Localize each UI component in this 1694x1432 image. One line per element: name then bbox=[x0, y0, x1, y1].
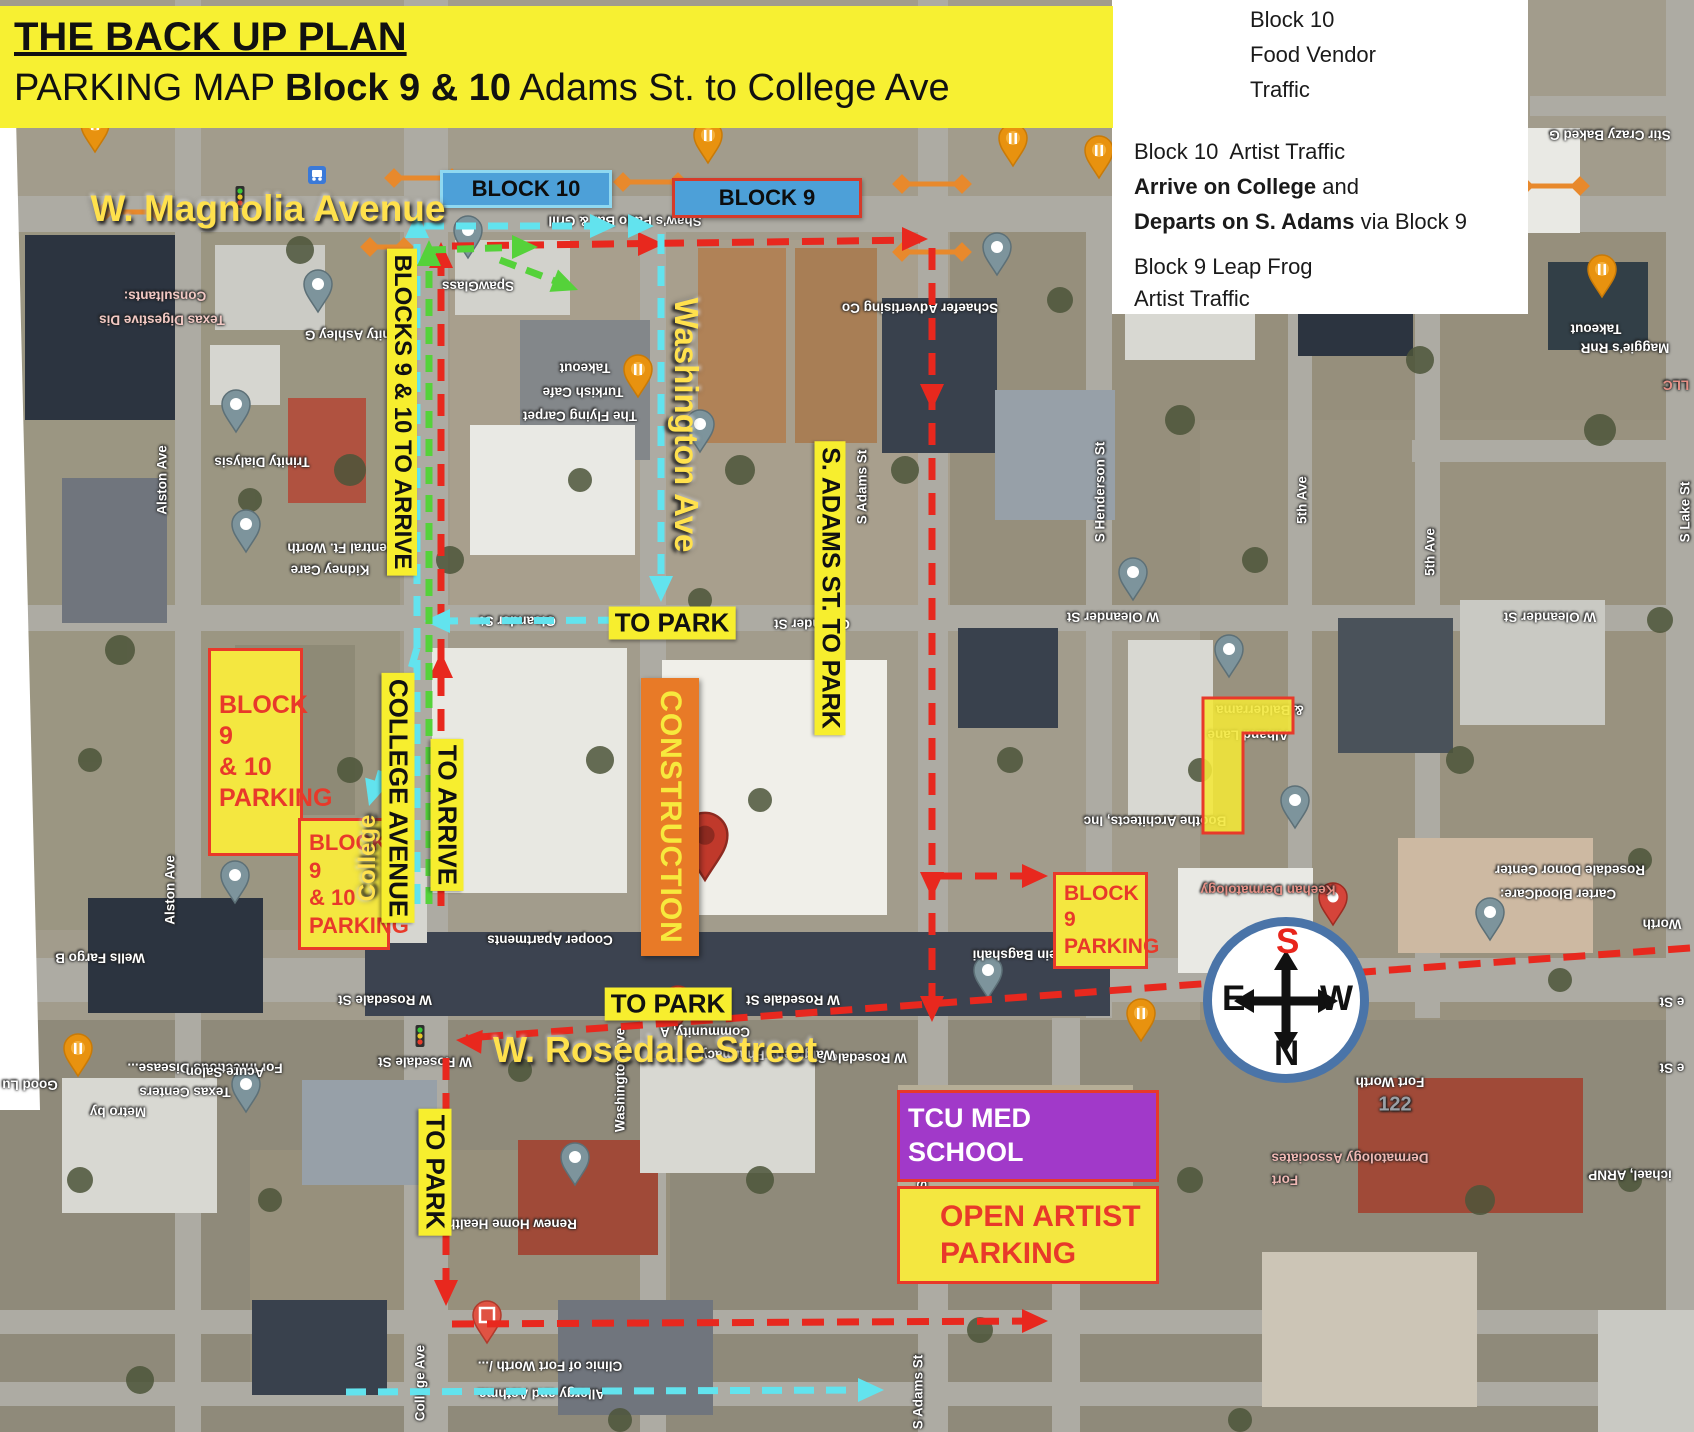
map-label: Texas Centers bbox=[139, 1085, 230, 1100]
legend-item1-line2: Food Vendor bbox=[1250, 43, 1376, 67]
map-label: 122 bbox=[1378, 1094, 1411, 1117]
map-label: Kidney Care bbox=[291, 563, 370, 578]
college-script-label: College bbox=[354, 815, 382, 902]
legend-item1-line1: Block 10 bbox=[1250, 8, 1334, 32]
map-label: S Adams St bbox=[911, 1355, 926, 1430]
legend-item2-line3: Departs on S. Adams via Block 9 bbox=[1134, 210, 1467, 234]
to-park-oleander-label: TO PARK bbox=[609, 607, 736, 640]
map-label: Texas Digestive Dis bbox=[99, 313, 225, 328]
college-avenue-label: COLLEGE AVENUE bbox=[382, 673, 415, 923]
map-label: S Adams St bbox=[855, 450, 870, 525]
compass-rose: S E W N bbox=[1203, 917, 1369, 1083]
map-label: ichael, ARNP bbox=[1588, 1168, 1672, 1183]
block-9-10-parking-large: BLOCK 9& 10PARKING bbox=[208, 648, 303, 856]
map-label: Takeout bbox=[560, 361, 611, 376]
map-label: Oleander St bbox=[480, 614, 556, 629]
map-label: W Rosedale St bbox=[338, 993, 432, 1008]
legend-arrive-bold: Arrive on College bbox=[1134, 174, 1316, 199]
tcu-med-school-line: TCU MED SCHOOL bbox=[908, 1102, 1148, 1170]
to-arrive-label: TO ARRIVE bbox=[431, 739, 464, 891]
map-label: Alston Ave bbox=[163, 855, 178, 925]
map-label: The Flying Carpet bbox=[523, 409, 637, 424]
legend-item3-line1: Block 9 Leap Frog bbox=[1134, 255, 1313, 279]
block-9-tag: BLOCK 9 bbox=[672, 178, 862, 218]
block-10-tag: BLOCK 10 bbox=[440, 170, 612, 208]
block-9-parking-line: PARKING bbox=[1064, 934, 1137, 960]
map-label: College Ave bbox=[413, 1345, 428, 1421]
legend-item2-line2: Arrive on College and bbox=[1134, 175, 1359, 199]
map-label: & Balderrama bbox=[1216, 703, 1304, 718]
to-park-college-label: TO PARK bbox=[419, 1109, 452, 1236]
block-9-10-parking-small-line: PARKING bbox=[309, 912, 379, 940]
map-label: Alston Ave bbox=[155, 445, 170, 515]
page-subtitle: PARKING MAP Block 9 & 10 Adams St. to Co… bbox=[14, 62, 1113, 114]
legend-departs-rest: via Block 9 bbox=[1354, 209, 1467, 234]
map-label: Stir Crazy Baked G bbox=[1549, 128, 1671, 143]
map-label: Central Ft. Worth bbox=[287, 541, 396, 556]
legend-departs-bold: Departs on S. Adams bbox=[1134, 209, 1354, 234]
map-label: W Rosedale St bbox=[746, 993, 840, 1008]
open-artist-parking-line: OPEN ARTIST bbox=[940, 1198, 1141, 1236]
to-park-rosedale-label: TO PARK bbox=[605, 988, 732, 1021]
map-label: 5th Ave bbox=[1423, 528, 1438, 576]
map-label: 5th Ave bbox=[1295, 476, 1310, 524]
map-label: Good Lu bbox=[2, 1078, 57, 1093]
block-9-10-parking-large-line: BLOCK 9 bbox=[219, 690, 292, 753]
map-label: Cooper Apartments bbox=[487, 933, 613, 948]
compass-north: N bbox=[1274, 1034, 1299, 1074]
block-9-parking-line: BLOCK 9 bbox=[1064, 881, 1137, 934]
map-label: Consultants: bbox=[124, 289, 207, 304]
subtitle-bold: Block 9 & 10 bbox=[285, 67, 511, 109]
compass-east: E bbox=[1222, 979, 1245, 1019]
legend-item2-line1: Block 10 Artist Traffic bbox=[1134, 140, 1345, 164]
page-title: THE BACK UP PLAN bbox=[14, 12, 1113, 62]
parking-map-slide: Consultants:Texas Digestive DisTrinity A… bbox=[0, 0, 1694, 1432]
tcu-med-school: TCU MED SCHOOL bbox=[897, 1090, 1159, 1182]
compass-south: S bbox=[1276, 922, 1299, 962]
title-banner: THE BACK UP PLAN PARKING MAP Block 9 & 1… bbox=[0, 6, 1113, 128]
map-label: Worth bbox=[1643, 917, 1682, 932]
open-artist-parking-line: PARKING bbox=[940, 1235, 1076, 1273]
map-label: e St bbox=[1660, 995, 1685, 1010]
map-label: Boothe Architects, Inc bbox=[1084, 814, 1227, 829]
construction-label: CONSTRUCTION bbox=[653, 690, 687, 944]
map-label: Fort Worth bbox=[1356, 1075, 1425, 1090]
rosedale-street-label: W. Rosedale Street bbox=[493, 1029, 817, 1071]
s-adams-to-park-label: S. ADAMS ST. TO PARK bbox=[815, 441, 846, 735]
map-label: Clinic of Fort Worth /... bbox=[478, 1359, 623, 1374]
map-label: Schaefer Advertising Co bbox=[842, 301, 998, 316]
legend: Block 10 Food Vendor Traffic Block 10 Ar… bbox=[1112, 0, 1528, 314]
construction-box: CONSTRUCTION bbox=[641, 678, 699, 956]
map-label: Acure Salon bbox=[186, 1065, 265, 1080]
map-label: Alhand Lane bbox=[1207, 728, 1288, 743]
blocks-9-10-to-arrive-label: BLOCKS 9 & 10 TO ARRIVE bbox=[387, 249, 417, 576]
map-label: Keehan Dermatology bbox=[1200, 883, 1335, 898]
map-label: S Lake St bbox=[1678, 482, 1693, 543]
map-label: Maggie's RnR bbox=[1581, 341, 1670, 356]
block-9-10-parking-large-line: PARKING bbox=[219, 783, 292, 814]
map-label: LLC bbox=[1663, 378, 1689, 393]
washington-ave-label: Washington Ave bbox=[667, 298, 705, 553]
map-label: Fort bbox=[1272, 1173, 1298, 1188]
map-label: Takeout bbox=[1571, 322, 1622, 337]
block-9-10-parking-large-line: & 10 bbox=[219, 752, 292, 783]
map-label: Turkish Cafe bbox=[543, 385, 624, 400]
map-label: Metro by bbox=[90, 1105, 146, 1120]
compass-west: W bbox=[1320, 979, 1353, 1019]
legend-item1-line3: Traffic bbox=[1250, 78, 1310, 102]
map-label: e St bbox=[1660, 1061, 1685, 1076]
map-label: Allergy and Asthma bbox=[479, 1387, 605, 1402]
magnolia-avenue-label: W. Magnolia Avenue bbox=[91, 188, 446, 230]
map-label: Dermatology Associates bbox=[1271, 1151, 1428, 1166]
map-label: Trinity Dialysis bbox=[214, 455, 309, 470]
legend-arrive-rest: and bbox=[1316, 174, 1359, 199]
map-label: SpawGlass bbox=[442, 279, 514, 294]
map-label: Renew Home Health bbox=[447, 1217, 577, 1232]
map-label: Wells Fargo B bbox=[55, 951, 145, 966]
legend-item3-line2: Artist Traffic bbox=[1134, 287, 1250, 311]
open-artist-parking: OPEN ARTISTPARKING bbox=[897, 1186, 1159, 1284]
map-label: S Henderson St bbox=[1093, 442, 1108, 543]
map-label: W Oleander St bbox=[1504, 610, 1596, 625]
subtitle-suffix: Adams St. to College Ave bbox=[511, 67, 950, 109]
map-label: W Oleander St bbox=[1067, 610, 1159, 625]
map-label: Rosedale Donor Center bbox=[1495, 863, 1645, 878]
map-label: W Rosedale St bbox=[378, 1055, 472, 1070]
subtitle-prefix: PARKING MAP bbox=[14, 67, 285, 109]
block-9-parking: BLOCK 9PARKING bbox=[1053, 872, 1148, 969]
map-label: Carter BloodCare: bbox=[1500, 887, 1616, 902]
